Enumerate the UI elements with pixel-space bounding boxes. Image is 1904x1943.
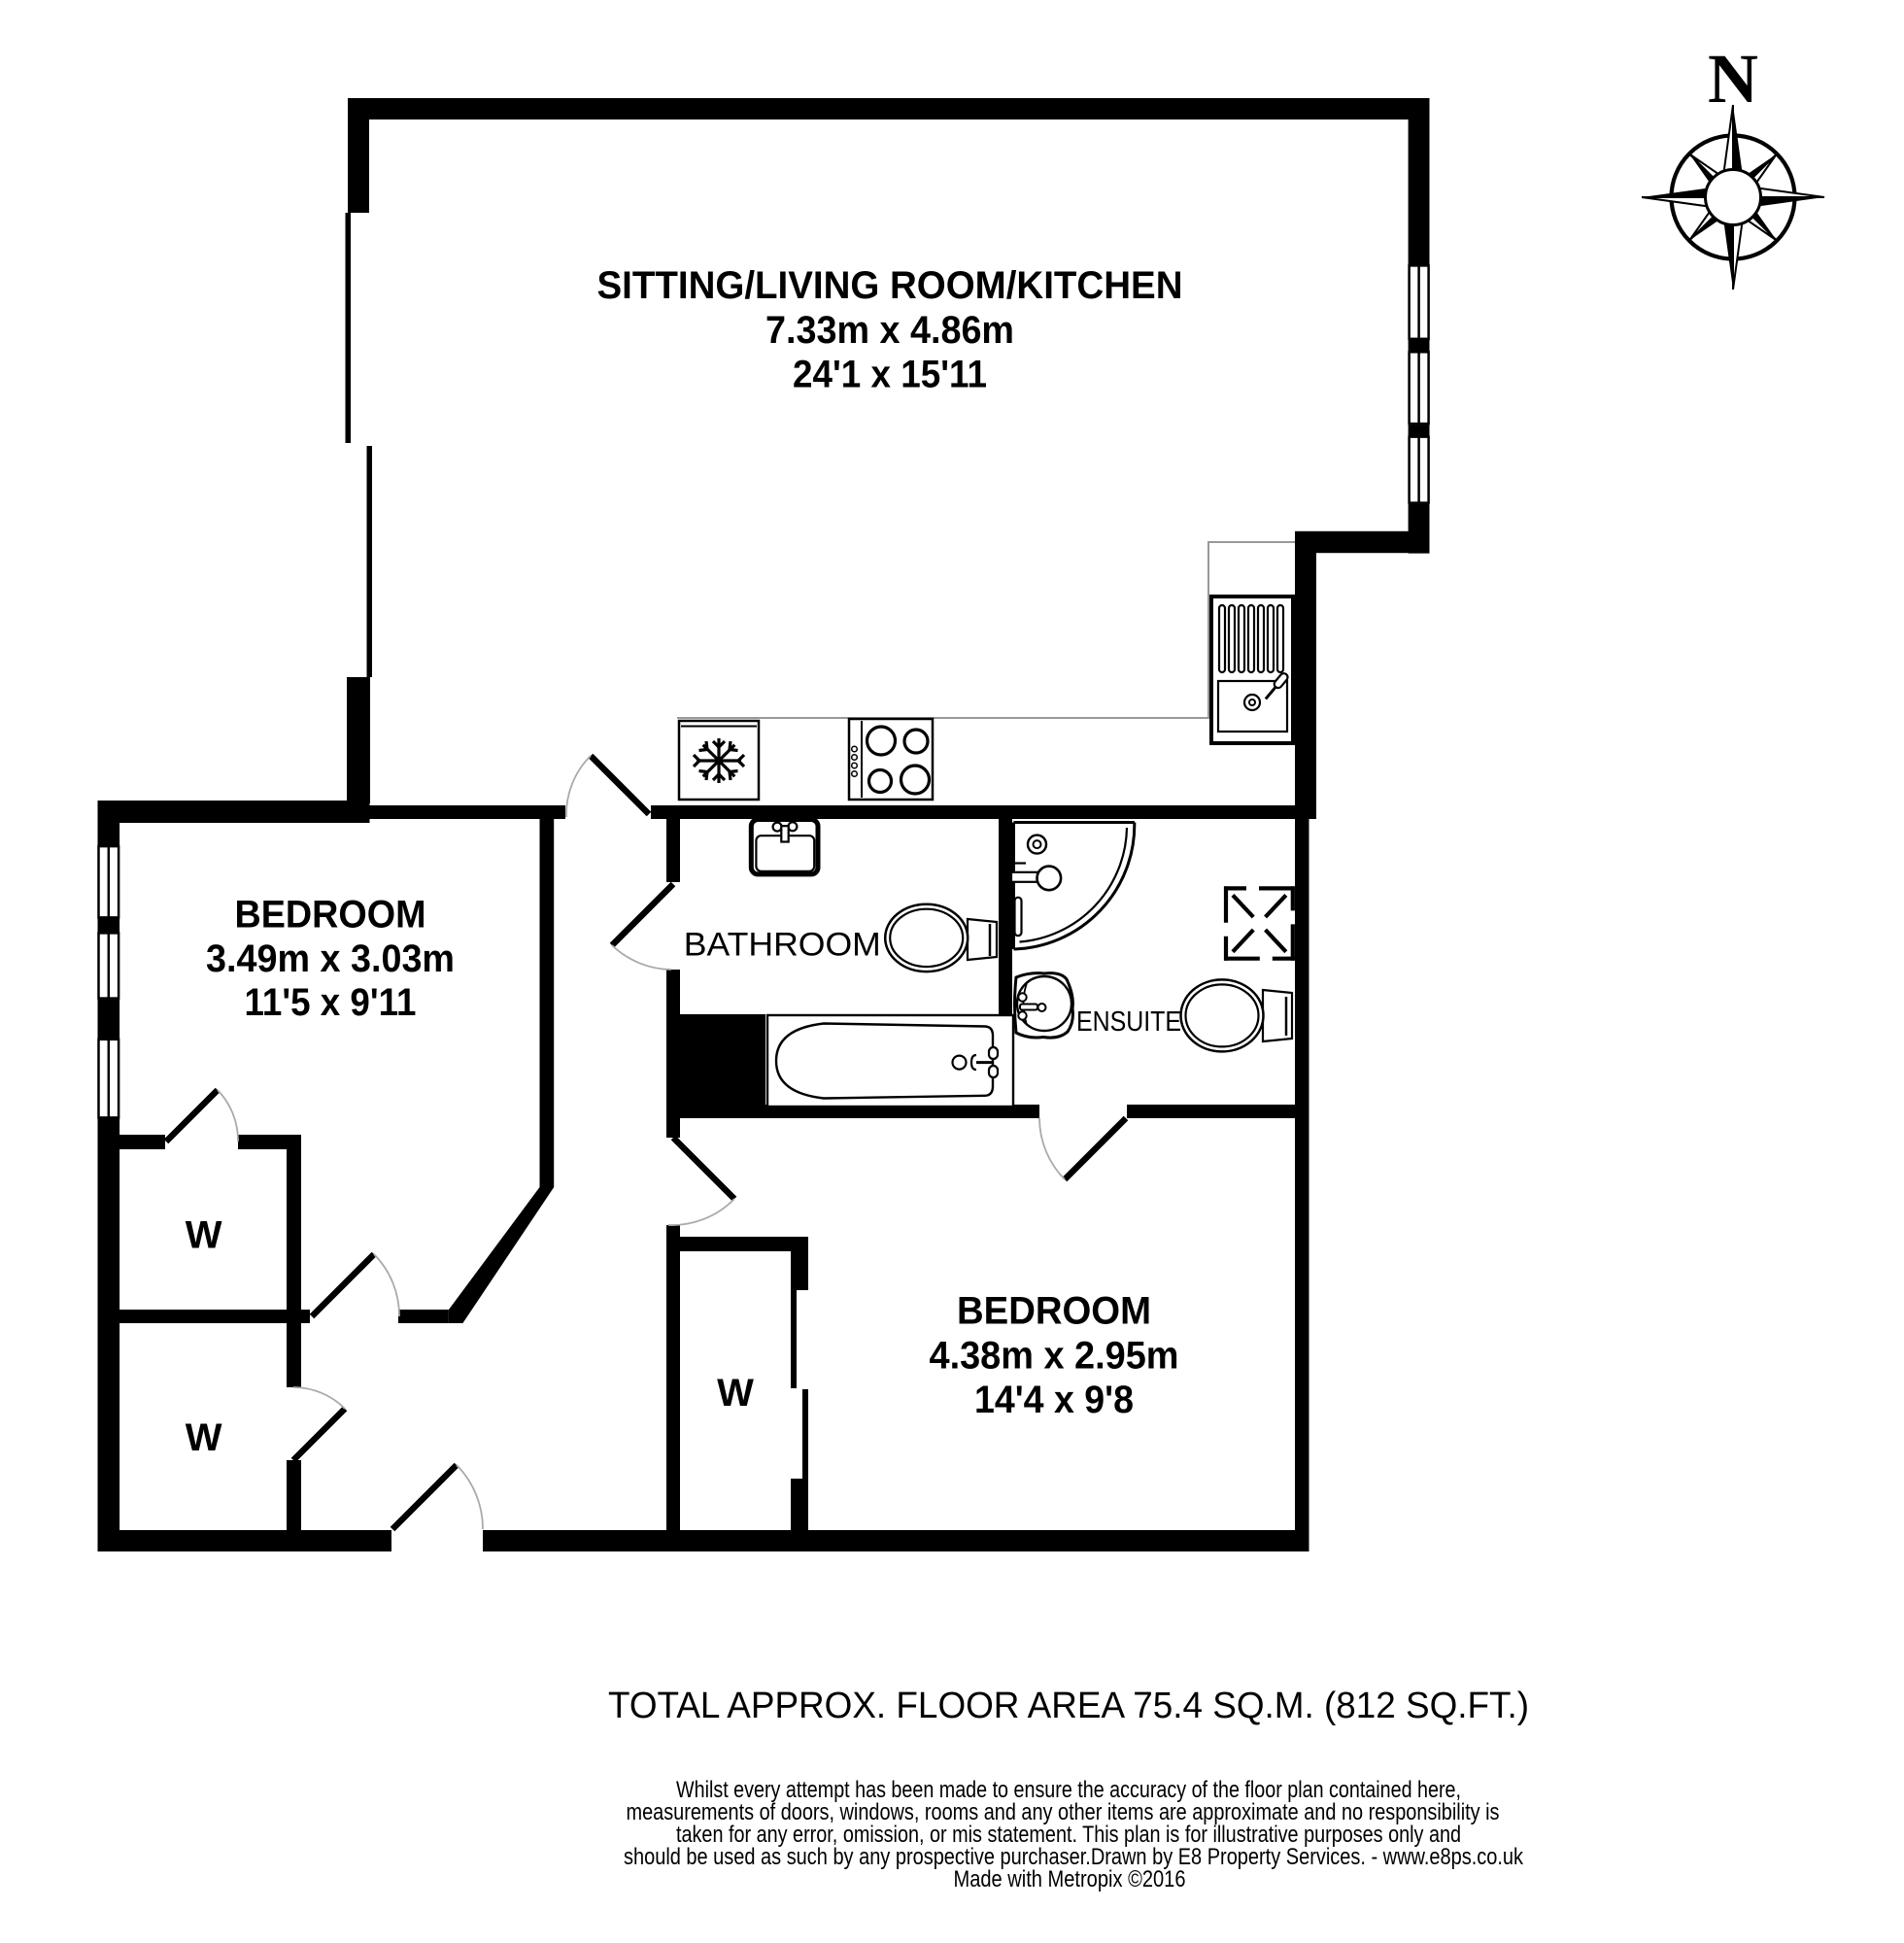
svg-text:BEDROOM: BEDROOM <box>957 1290 1151 1333</box>
svg-text:BATHROOM: BATHROOM <box>684 927 881 964</box>
svg-text:14'4 x 9'8: 14'4 x 9'8 <box>974 1379 1134 1421</box>
svg-text:24'1 x 15'11: 24'1 x 15'11 <box>793 354 987 396</box>
svg-text:3.49m x 3.03m: 3.49m x 3.03m <box>206 937 455 980</box>
svg-text:SITTING/LIVING ROOM/KITCHEN: SITTING/LIVING ROOM/KITCHEN <box>597 264 1183 307</box>
svg-text:7.33m x 4.86m: 7.33m x 4.86m <box>765 309 1014 352</box>
svg-text:4.38m x 2.95m: 4.38m x 2.95m <box>930 1335 1179 1378</box>
svg-text:N: N <box>1708 40 1758 118</box>
svg-text:ENSUITE: ENSUITE <box>1076 1006 1181 1038</box>
svg-text:W: W <box>717 1372 754 1415</box>
svg-text:11'5 x 9'11: 11'5 x 9'11 <box>245 981 417 1024</box>
svg-text:TOTAL APPROX. FLOOR AREA 75.4: TOTAL APPROX. FLOOR AREA 75.4 SQ.M. (812… <box>608 1686 1529 1726</box>
svg-text:Made with Metropix ©2016: Made with Metropix ©2016 <box>954 1866 1186 1892</box>
svg-text:W: W <box>186 1214 222 1257</box>
svg-text:W: W <box>186 1416 222 1459</box>
svg-text:BEDROOM: BEDROOM <box>235 894 426 937</box>
